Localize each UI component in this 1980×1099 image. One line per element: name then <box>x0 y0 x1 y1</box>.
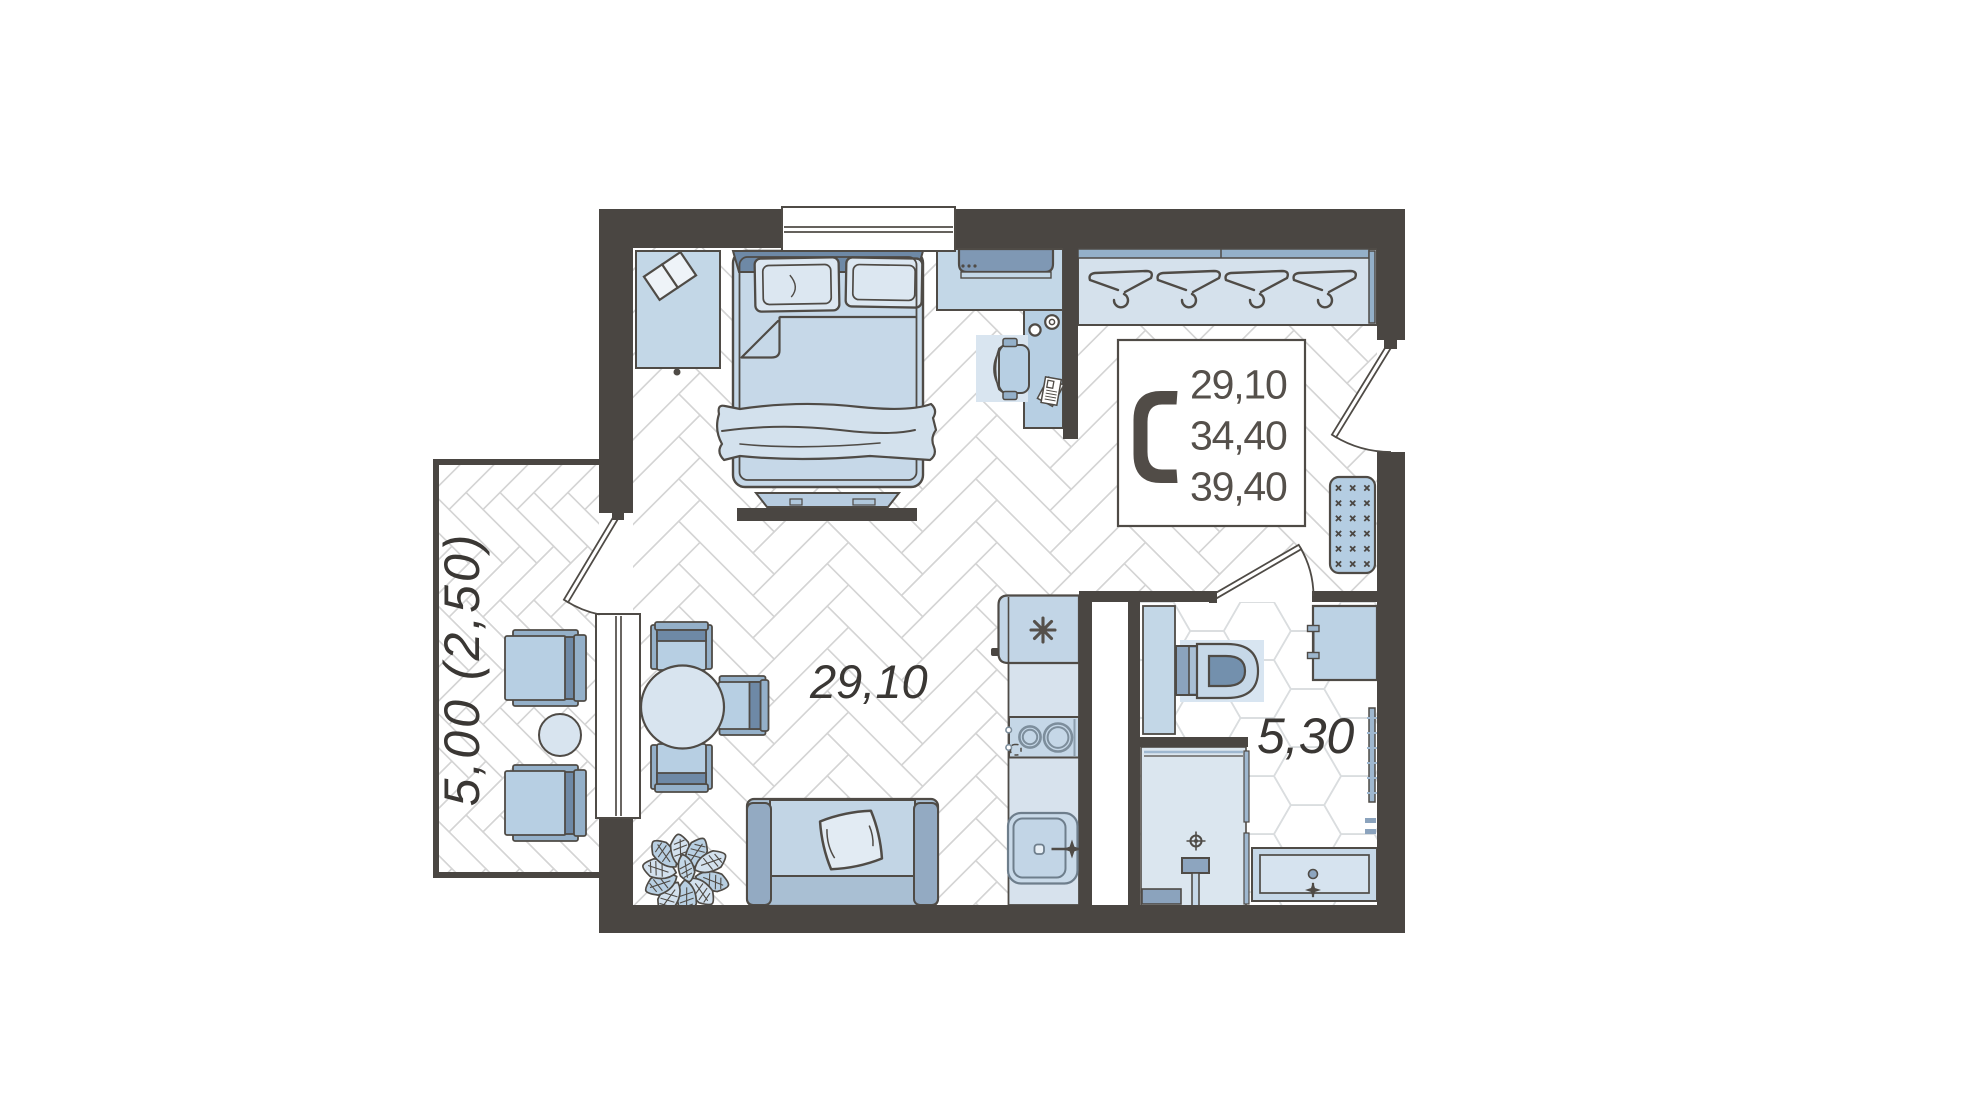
svg-text:5,30: 5,30 <box>1257 708 1355 764</box>
svg-text:29,10: 29,10 <box>1190 362 1287 408</box>
svg-text:34,40: 34,40 <box>1190 413 1287 459</box>
svg-text:29,10: 29,10 <box>809 655 928 708</box>
svg-text:39,40: 39,40 <box>1190 464 1287 510</box>
svg-text:5,00 (2,50): 5,00 (2,50) <box>434 532 490 807</box>
